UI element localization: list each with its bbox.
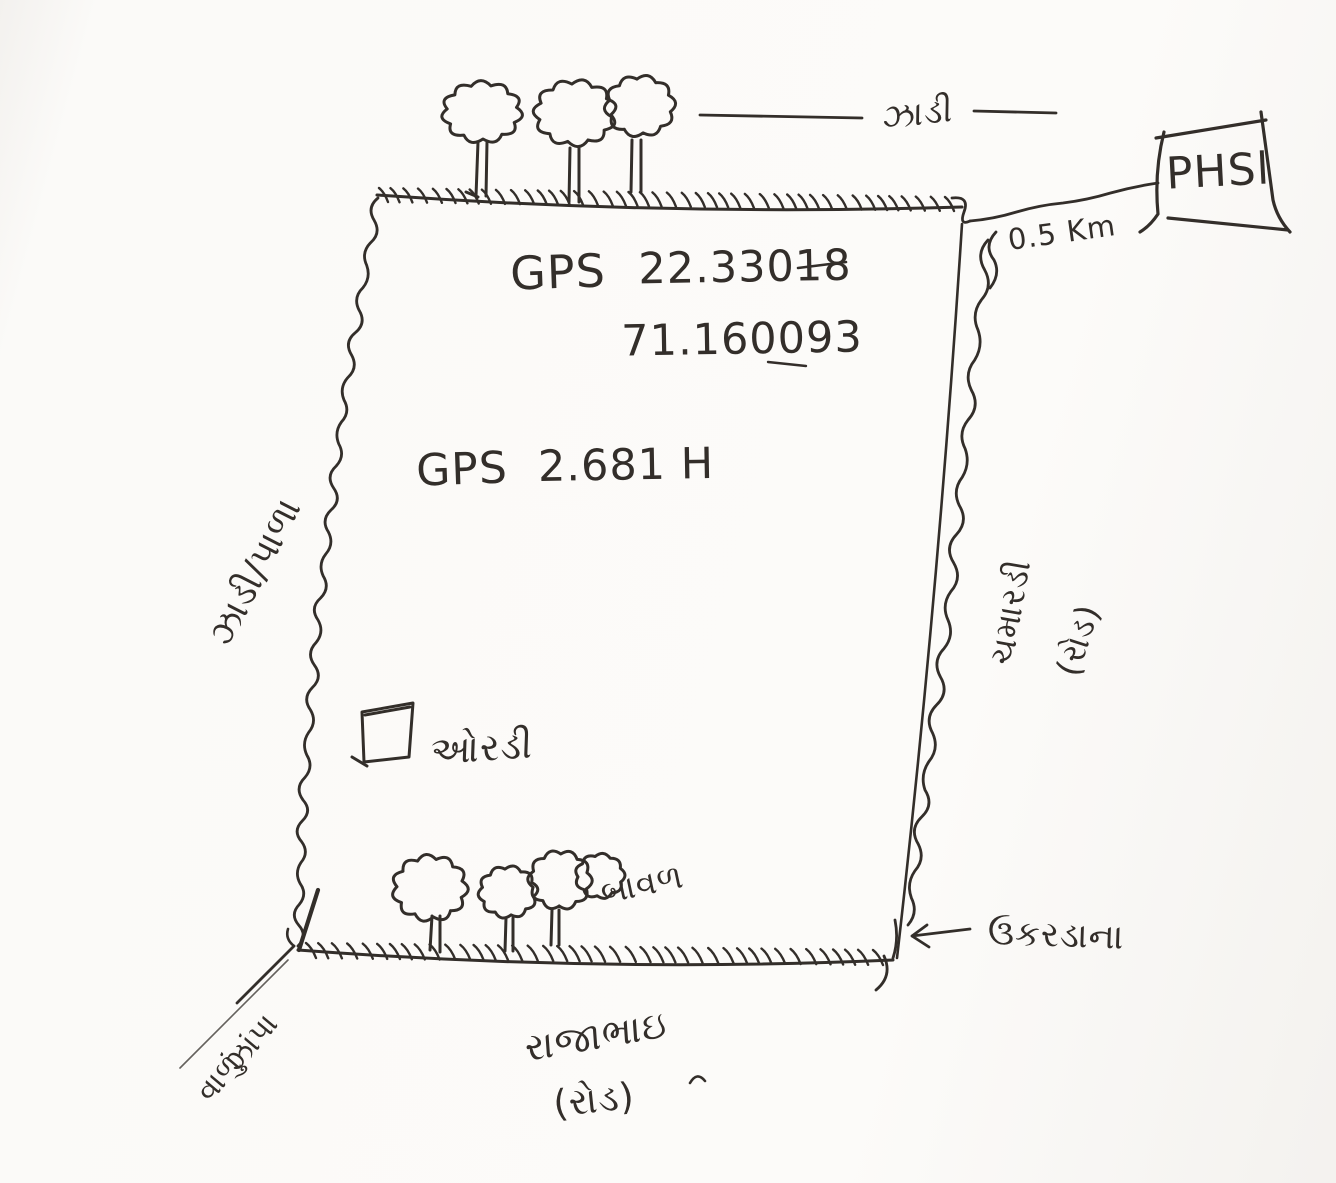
- bottom-tree-1-trunk: [430, 916, 440, 952]
- sketch-canvas: [0, 0, 1336, 1183]
- bottom-tree-3-trunk: [551, 910, 559, 945]
- gate-line-1: [237, 946, 294, 1003]
- hand-drawn-plot-sketch: GPS 22.33018 71.160093 GPS 2.681 H ઝાડી …: [0, 0, 1336, 1183]
- gps-latitude: 22.33018: [638, 245, 852, 292]
- plot-right-edge-squiggle: [908, 240, 988, 925]
- hut-square: [352, 703, 413, 766]
- hut-label: ઓરડી: [430, 725, 534, 770]
- top-trees-label: ઝાડી: [882, 92, 953, 135]
- corner-note: ઉકરડાના: [987, 916, 1125, 956]
- caret-mark: [690, 1076, 705, 1083]
- phs-box-label: PHSl: [1165, 147, 1271, 196]
- top-annotation-dash-left: [700, 115, 862, 118]
- gps-label-1: GPS: [509, 247, 606, 296]
- gate-corner-hook: [287, 929, 294, 946]
- plot-left-edge: [294, 198, 378, 946]
- top-annotation-dash-right: [974, 111, 1056, 113]
- plot-bottom-edge-hatching: [306, 943, 883, 965]
- top-tree-2-trunk: [569, 148, 579, 202]
- bottom-tree-1-canopy: [393, 854, 469, 921]
- gps-longitude: 71.160093: [621, 316, 863, 363]
- gps-area-value: 2.681 H: [538, 443, 715, 489]
- top-right-brace: [989, 232, 997, 288]
- top-tree-3-trunk: [631, 140, 641, 192]
- corner-arrow: [912, 925, 970, 947]
- top-tree-1-canopy: [442, 81, 523, 143]
- bottom-edge-type: (રોડ): [552, 1077, 637, 1122]
- bottom-tree-2-trunk: [505, 918, 513, 951]
- top-tree-2-canopy: [533, 80, 616, 147]
- gps-label-2: GPS: [415, 446, 508, 493]
